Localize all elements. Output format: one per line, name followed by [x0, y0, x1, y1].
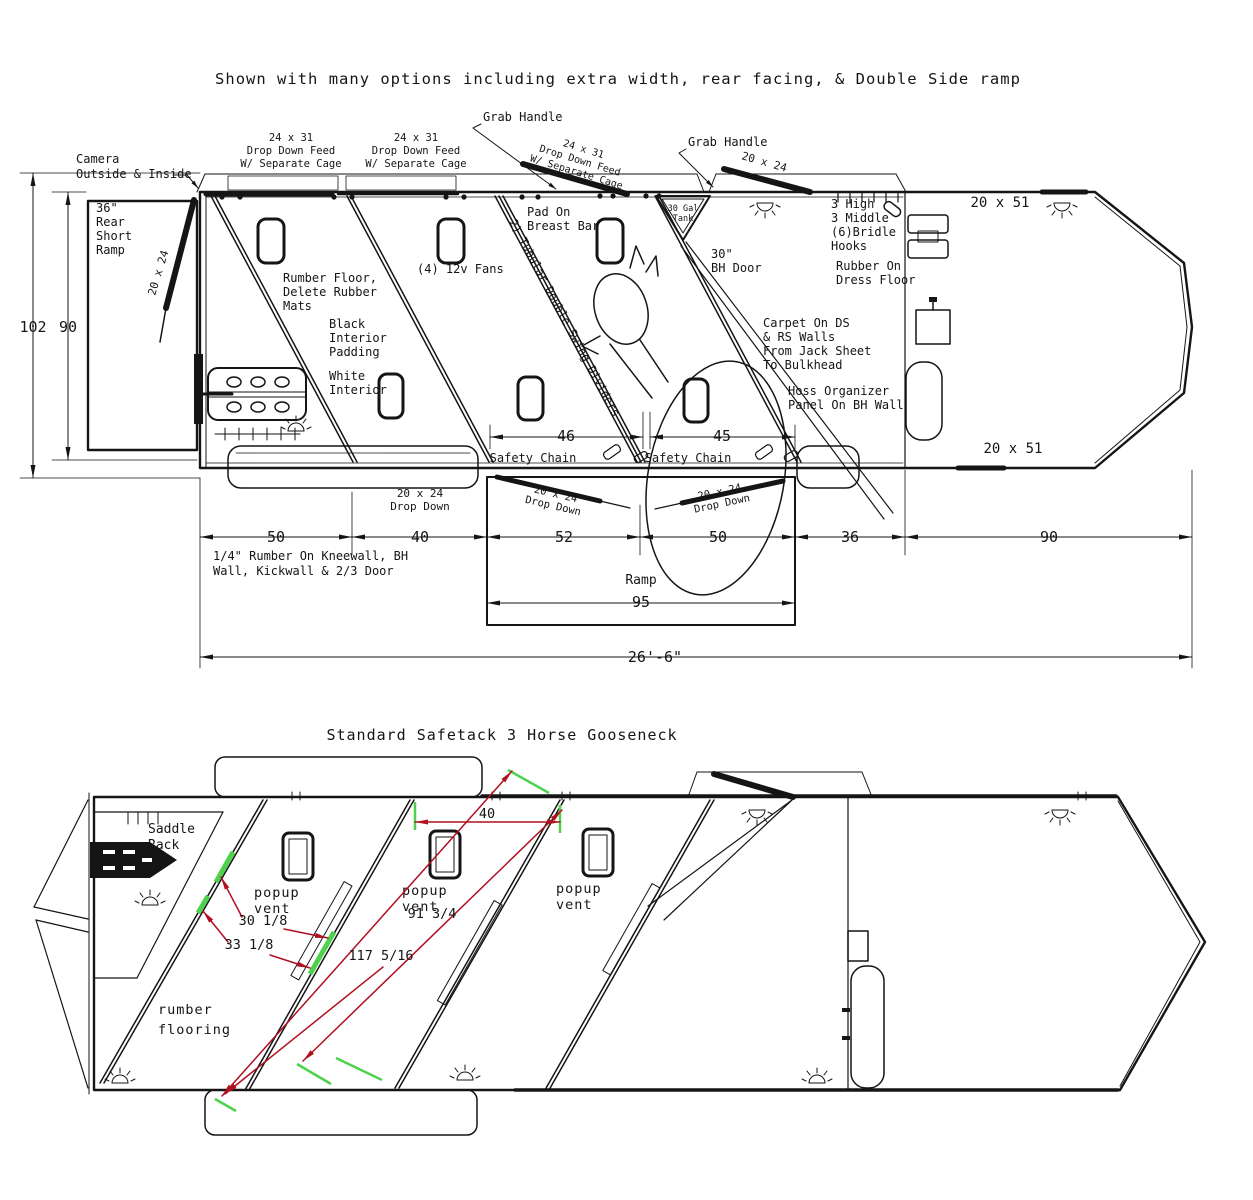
svg-text:52: 52: [555, 528, 573, 546]
trailer-drawing: Shown with many options including extra …: [0, 0, 1253, 1200]
hooks-label: 3 High: [831, 197, 874, 211]
flooring-label: rumber: [158, 1002, 213, 1018]
black-interior-label: Black: [329, 317, 366, 331]
svg-text:popup: popup: [254, 885, 300, 901]
kneewall-note: 1/4" Rumber On Kneewall, BH: [213, 549, 408, 563]
svg-text:To Bulkhead: To Bulkhead: [763, 358, 842, 372]
trailer-drawing-page: Shown with many options including extra …: [0, 0, 1253, 1200]
bh-door-label: 30": [711, 247, 733, 261]
white-interior-label: White: [329, 369, 365, 383]
svg-text:Padding: Padding: [329, 345, 380, 359]
feed-door-label-1: 24 x 31 Drop Down Feed W/ Separate Cage: [240, 132, 341, 170]
svg-text:Short: Short: [96, 229, 132, 243]
rear-doors-open: [34, 800, 88, 1088]
svg-text:popup: popup: [402, 883, 448, 899]
svg-text:flooring: flooring: [158, 1022, 231, 1038]
bottom-view-plan: Standard Safetack 3 Horse Gooseneck: [34, 726, 1205, 1135]
nose-window-top: 20 x 51: [970, 195, 1029, 211]
grab-handle-label-1: Grab Handle: [483, 110, 562, 124]
hoss-organizer-label: Hoss Organizer: [788, 384, 889, 398]
camera-label: Outside & Inside: [76, 167, 192, 181]
dress-floor-label: Rubber On: [836, 259, 901, 273]
grab-handle-label-2: Grab Handle: [688, 135, 767, 149]
svg-text:Ramp: Ramp: [96, 243, 125, 257]
svg-text:W/ Separate Cage: W/ Separate Cage: [240, 158, 341, 170]
gooseneck-roof: [688, 772, 872, 797]
svg-text:Rack: Rack: [148, 838, 179, 853]
svg-text:90: 90: [59, 318, 77, 336]
svg-text:3 Middle: 3 Middle: [831, 211, 889, 225]
dim-40: 40: [479, 806, 495, 822]
svg-text:(6)Bridle: (6)Bridle: [831, 225, 896, 239]
grab-handle-leader-2: [679, 149, 713, 187]
feed-door-label-2: 24 x 31 Drop Down Feed W/ Separate Cage: [365, 132, 466, 170]
fans-label: (4) 12v Fans: [417, 262, 504, 276]
svg-text:Delete Rubber: Delete Rubber: [283, 285, 377, 299]
svg-text:Drop Down: Drop Down: [390, 500, 450, 513]
propane-tank: [906, 362, 942, 440]
svg-text:45: 45: [713, 427, 731, 445]
svg-text:BH Door: BH Door: [711, 261, 762, 275]
battery-box: [916, 310, 950, 344]
svg-text:popup: popup: [556, 881, 602, 897]
dim-91-34: 91 3/4: [408, 906, 457, 922]
top-view-plan: Shown with many options including extra …: [19, 70, 1192, 668]
saddle-compartment: Saddle Rack: [90, 812, 223, 978]
popup-vents: [283, 829, 613, 880]
gooseneck-window-size: 20 x 24: [740, 149, 789, 174]
svg-text:102: 102: [19, 318, 46, 336]
dim-30-18: 30 1/8: [239, 913, 288, 929]
nose-inner-line-bottom: [1118, 801, 1200, 1086]
svg-text:Drop Down Feed: Drop Down Feed: [247, 145, 336, 157]
svg-text:W/ Separate Cage: W/ Separate Cage: [365, 158, 466, 170]
horse-silhouette: [582, 246, 803, 606]
svg-text:Breast Bar: Breast Bar: [527, 219, 599, 233]
dim-117-516: 117 5/16: [348, 948, 413, 964]
bottom-title: Standard Safetack 3 Horse Gooseneck: [326, 726, 677, 744]
drop-down-label-3: 20 x 24 Drop Down: [690, 480, 751, 515]
hitch-fixture: [908, 215, 948, 233]
svg-text:46: 46: [557, 427, 575, 445]
dimension-ramp: Ramp 95: [487, 573, 795, 611]
svg-text:Hooks: Hooks: [831, 239, 867, 253]
svg-text:24 x 31: 24 x 31: [269, 132, 313, 144]
svg-text:vent: vent: [556, 897, 593, 913]
carpet-label: Carpet On DS: [763, 316, 850, 330]
svg-text:Rear: Rear: [96, 215, 125, 229]
drop-down-label-1: 20 x 24: [397, 487, 444, 500]
svg-text:Interior: Interior: [329, 383, 387, 397]
svg-text:Interior: Interior: [329, 331, 387, 345]
svg-text:Mats: Mats: [283, 299, 312, 313]
dim-33-18: 33 1/8: [225, 937, 274, 953]
svg-text:Drop Down Feed: Drop Down Feed: [372, 145, 461, 157]
roof-pod-bottom: [205, 1090, 477, 1135]
dividers-label: 2) Tubular Double Swing Dividers: [506, 217, 623, 419]
dimension-chains: 46 45: [490, 412, 795, 449]
svg-text:Panel On BH Wall: Panel On BH Wall: [788, 398, 904, 412]
nose-door-swing: [648, 800, 792, 920]
nose-window-bottom: 20 x 51: [983, 441, 1042, 457]
tank-label: Tank: [673, 214, 693, 224]
red-dimensions: 40 30 1/8 33 1/8 91 3/4 117 5/16: [203, 770, 562, 1111]
svg-text:24 x 31: 24 x 31: [394, 132, 438, 144]
tank-label: 30 Gal: [668, 204, 699, 214]
nose-inner-line: [1095, 197, 1187, 463]
svg-text:95: 95: [632, 593, 650, 611]
saddle-rack-label: Saddle: [148, 822, 195, 837]
gooseneck-fixtures-bottom: [842, 797, 884, 1090]
svg-text:40: 40: [411, 528, 429, 546]
gooseneck-window-bar: [724, 169, 810, 192]
svg-text:From Jack Sheet: From Jack Sheet: [763, 344, 871, 358]
svg-text:26'-6": 26'-6": [628, 648, 682, 666]
rear-ramp-label: 36": [96, 201, 118, 215]
safety-chain-label-2: Safety Chain: [645, 451, 732, 465]
water-tank: 30 Gal Tank: [656, 196, 710, 240]
roof-vents: [258, 219, 708, 422]
svg-text:90: 90: [1040, 528, 1058, 546]
svg-text:50: 50: [709, 528, 727, 546]
svg-text:36: 36: [841, 528, 859, 546]
popup-vent-label-3: popup vent: [556, 881, 602, 913]
svg-text:& RS Walls: & RS Walls: [763, 330, 835, 344]
rear-door-size: 20 x 24: [145, 248, 171, 296]
camera-label: Camera: [76, 152, 119, 166]
svg-text:50: 50: [267, 528, 285, 546]
top-title: Shown with many options including extra …: [215, 70, 1021, 88]
ramp-label: Ramp: [625, 573, 656, 588]
rumber-floor-label: Rumber Floor,: [283, 271, 377, 285]
svg-text:Dress Floor: Dress Floor: [836, 273, 915, 287]
stall-dividers-bottom: [100, 800, 714, 1090]
dimension-total: 26'-6": [200, 648, 1192, 666]
safety-chain-label-1: Safety Chain: [490, 451, 577, 465]
svg-text:Wall, Kickwall & 2/3 Door: Wall, Kickwall & 2/3 Door: [213, 564, 394, 578]
roof-pod-top: [215, 757, 482, 797]
pad-label: Pad On: [527, 205, 570, 219]
stall-dividers: [211, 196, 801, 462]
